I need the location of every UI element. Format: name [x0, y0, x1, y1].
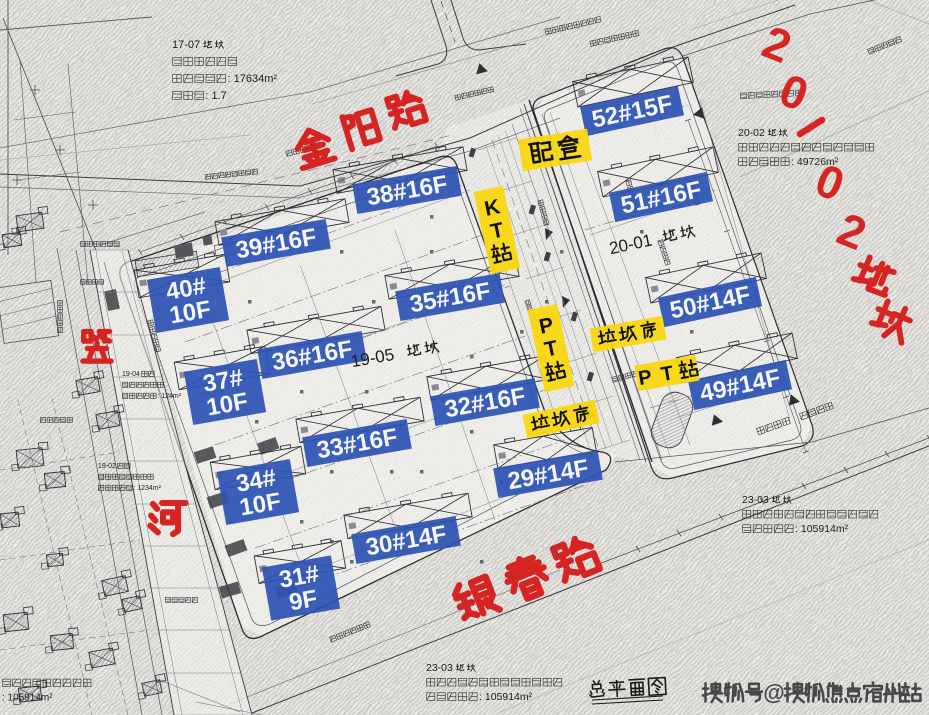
svg-text:17-07: 17-07 — [172, 39, 200, 51]
svg-text:9F: 9F — [287, 585, 319, 616]
svg-text:19-02: 19-02 — [98, 463, 116, 470]
svg-text:: 105914m²: : 105914m² — [479, 691, 533, 703]
svg-text:23-03: 23-03 — [742, 494, 769, 506]
svg-text:23-03: 23-03 — [426, 662, 453, 674]
svg-text:: 105914m²: : 105914m² — [795, 523, 849, 535]
svg-text:@: @ — [763, 680, 784, 705]
svg-text:: 105914m²: : 105914m² — [2, 693, 53, 704]
svg-text:20-02: 20-02 — [738, 127, 765, 139]
svg-text:: 49726m²: : 49726m² — [791, 156, 839, 168]
svg-text:: 17634m²: : 17634m² — [228, 73, 278, 85]
svg-text:: 124m²: : 124m² — [157, 393, 181, 400]
svg-text:: 1.7: : 1.7 — [205, 90, 226, 102]
svg-text:: 1234m²: : 1234m² — [133, 485, 161, 492]
svg-text:19-04: 19-04 — [122, 371, 140, 378]
